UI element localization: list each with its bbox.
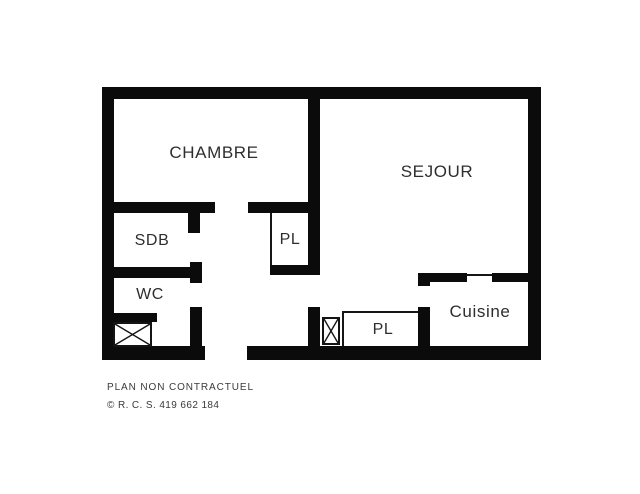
- wall-cuisine-west: [418, 307, 430, 360]
- line-placard-entree-top: [342, 311, 418, 313]
- line-placard-couloir-left: [270, 213, 272, 265]
- floor-plan-page: CHAMBRE SEJOUR SDB WC PL PL Cuisine PLAN…: [0, 0, 640, 494]
- wall-hall-west-lower: [190, 307, 202, 348]
- wall-chambre-south-east: [248, 202, 320, 213]
- wall-outer-top: [102, 87, 540, 99]
- disclaimer-text: PLAN NON CONTRACTUEL: [107, 382, 254, 393]
- room-label-placard-entree: PL: [373, 321, 394, 339]
- registration-text: © R. C. S. 419 662 184: [107, 400, 219, 411]
- shaft-crossed-box-icon: [113, 322, 152, 347]
- room-label-cuisine: Cuisine: [450, 302, 511, 322]
- shaft-crossed-box-icon: [322, 317, 340, 345]
- line-placard-entree-left: [342, 311, 344, 346]
- wall-divider-hall-sejour-lower: [308, 307, 320, 360]
- wall-sdb-wc-divider: [102, 267, 202, 278]
- line-cuisine-opening: [467, 274, 492, 276]
- wall-sdb-east-stub: [188, 213, 200, 233]
- wall-outer-right: [528, 87, 541, 360]
- wall-cuisine-north-east: [492, 273, 528, 282]
- wall-outer-bottom-right: [247, 346, 541, 360]
- room-label-wc: WC: [136, 286, 164, 304]
- wall-placard-couloir-bottom: [270, 265, 320, 275]
- wall-divider-chambre-sejour: [308, 87, 320, 275]
- wall-wc-shaft-top: [102, 313, 157, 322]
- room-label-sdb: SDB: [135, 232, 170, 250]
- room-label-chambre: CHAMBRE: [169, 143, 258, 163]
- room-label-placard-couloir: PL: [280, 231, 301, 249]
- wall-cuisine-north-stub: [418, 273, 430, 286]
- wall-chambre-south-west: [102, 202, 215, 213]
- wall-sdb-wc-endcap: [190, 262, 202, 283]
- wall-outer-bottom-left: [102, 346, 205, 360]
- room-label-sejour: SEJOUR: [401, 162, 474, 182]
